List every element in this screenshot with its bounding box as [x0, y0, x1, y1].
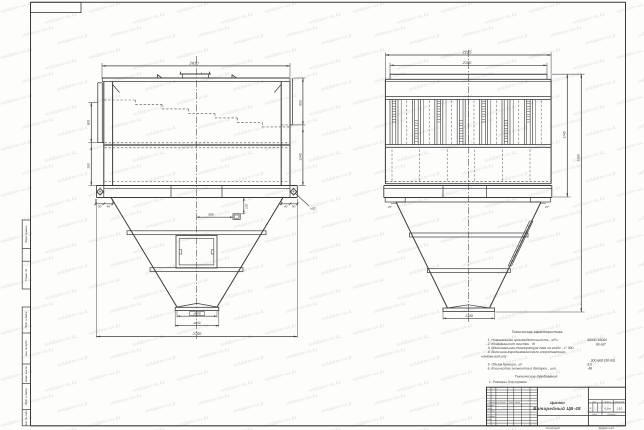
- svg-text:48: 48: [588, 367, 592, 371]
- svg-text:600: 600: [298, 100, 302, 106]
- svg-text:45°: 45°: [545, 205, 550, 209]
- svg-text:600: 600: [87, 120, 91, 126]
- svg-text:Листов 1: Листов 1: [607, 413, 617, 416]
- svg-text:⌀450: ⌀450: [193, 321, 200, 325]
- svg-text:Н.контр.: Н.контр.: [487, 415, 495, 418]
- svg-text:н/м²(мм.вод.ст): н/м²(мм.вод.ст): [481, 355, 506, 359]
- svg-text:Перв. примен.: Перв. примен.: [25, 225, 28, 243]
- svg-text:1240: 1240: [298, 153, 302, 161]
- svg-text:Масса: Масса: [605, 400, 612, 403]
- svg-text:1740: 1740: [563, 131, 567, 139]
- svg-text:Инв. № дубл.: Инв. № дубл.: [25, 339, 28, 356]
- svg-text:1. Размеры для справок: 1. Размеры для справок: [489, 380, 527, 384]
- svg-text:Т.контр.: Т.контр.: [487, 410, 495, 413]
- svg-text:Утв.: Утв.: [487, 418, 492, 421]
- svg-text:150: 150: [87, 163, 91, 169]
- svg-text:Циклон: Циклон: [550, 400, 565, 405]
- svg-text:⌀500: ⌀500: [193, 312, 200, 316]
- svg-text:1300: 1300: [465, 314, 473, 318]
- svg-text:45°: 45°: [388, 205, 393, 209]
- svg-text:Разраб.: Разраб.: [487, 404, 494, 407]
- svg-text:Подп.: Подп.: [509, 401, 515, 404]
- svg-text:300-600 (30-60): 300-600 (30-60): [591, 358, 615, 362]
- svg-text:4,5т: 4,5т: [604, 406, 611, 410]
- svg-text:90: 90: [292, 205, 296, 209]
- svg-text:2225: 2225: [462, 49, 473, 54]
- svg-text:85-90°: 85-90°: [596, 342, 607, 346]
- svg-text:2700: 2700: [192, 331, 202, 336]
- svg-text:Взам. инв.№: Взам. инв.№: [25, 366, 28, 382]
- svg-text:Дата: Дата: [514, 401, 520, 404]
- svg-text:Подп. и дата: Подп. и дата: [25, 311, 28, 328]
- svg-text:Справ. №: Справ. №: [25, 269, 28, 281]
- svg-text:Техническая характеристика: Техническая характеристика: [512, 330, 563, 334]
- svg-text:40: 40: [284, 205, 288, 209]
- svg-text:Подп. и дата: Подп. и дата: [25, 388, 28, 405]
- svg-text:Лист: Лист: [591, 413, 597, 416]
- svg-text:Формат А3: Формат А3: [598, 426, 614, 430]
- svg-text:Инв. № подл.: Инв. № подл.: [25, 409, 28, 426]
- svg-text:Технические требования: Технические требования: [515, 374, 558, 378]
- svg-text:30000-36000: 30000-36000: [587, 338, 607, 342]
- svg-text:Масштаб: Масштаб: [615, 400, 625, 403]
- svg-text:Копировал: Копировал: [546, 426, 560, 430]
- svg-text:550: 550: [208, 213, 214, 217]
- svg-text:6. Количество элементов в б: 6. Количество элементов в батарее , шт.: [488, 367, 557, 371]
- svg-text:№ докум.: № докум.: [498, 401, 507, 404]
- svg-text:40: 40: [107, 205, 111, 209]
- svg-text:2100: 2100: [462, 61, 472, 65]
- svg-text:⌀32: ⌀32: [310, 206, 316, 210]
- svg-text:Лит.: Лит.: [591, 400, 597, 403]
- svg-text:Батарейный ЦБ-48: Батарейный ЦБ-48: [533, 406, 581, 411]
- svg-text:120: 120: [245, 204, 249, 209]
- svg-text:2630: 2630: [189, 60, 200, 65]
- svg-text:1:10: 1:10: [616, 406, 622, 410]
- svg-text:3380: 3380: [577, 154, 581, 162]
- svg-text:Пров.: Пров.: [487, 407, 492, 410]
- svg-text:90: 90: [98, 205, 102, 209]
